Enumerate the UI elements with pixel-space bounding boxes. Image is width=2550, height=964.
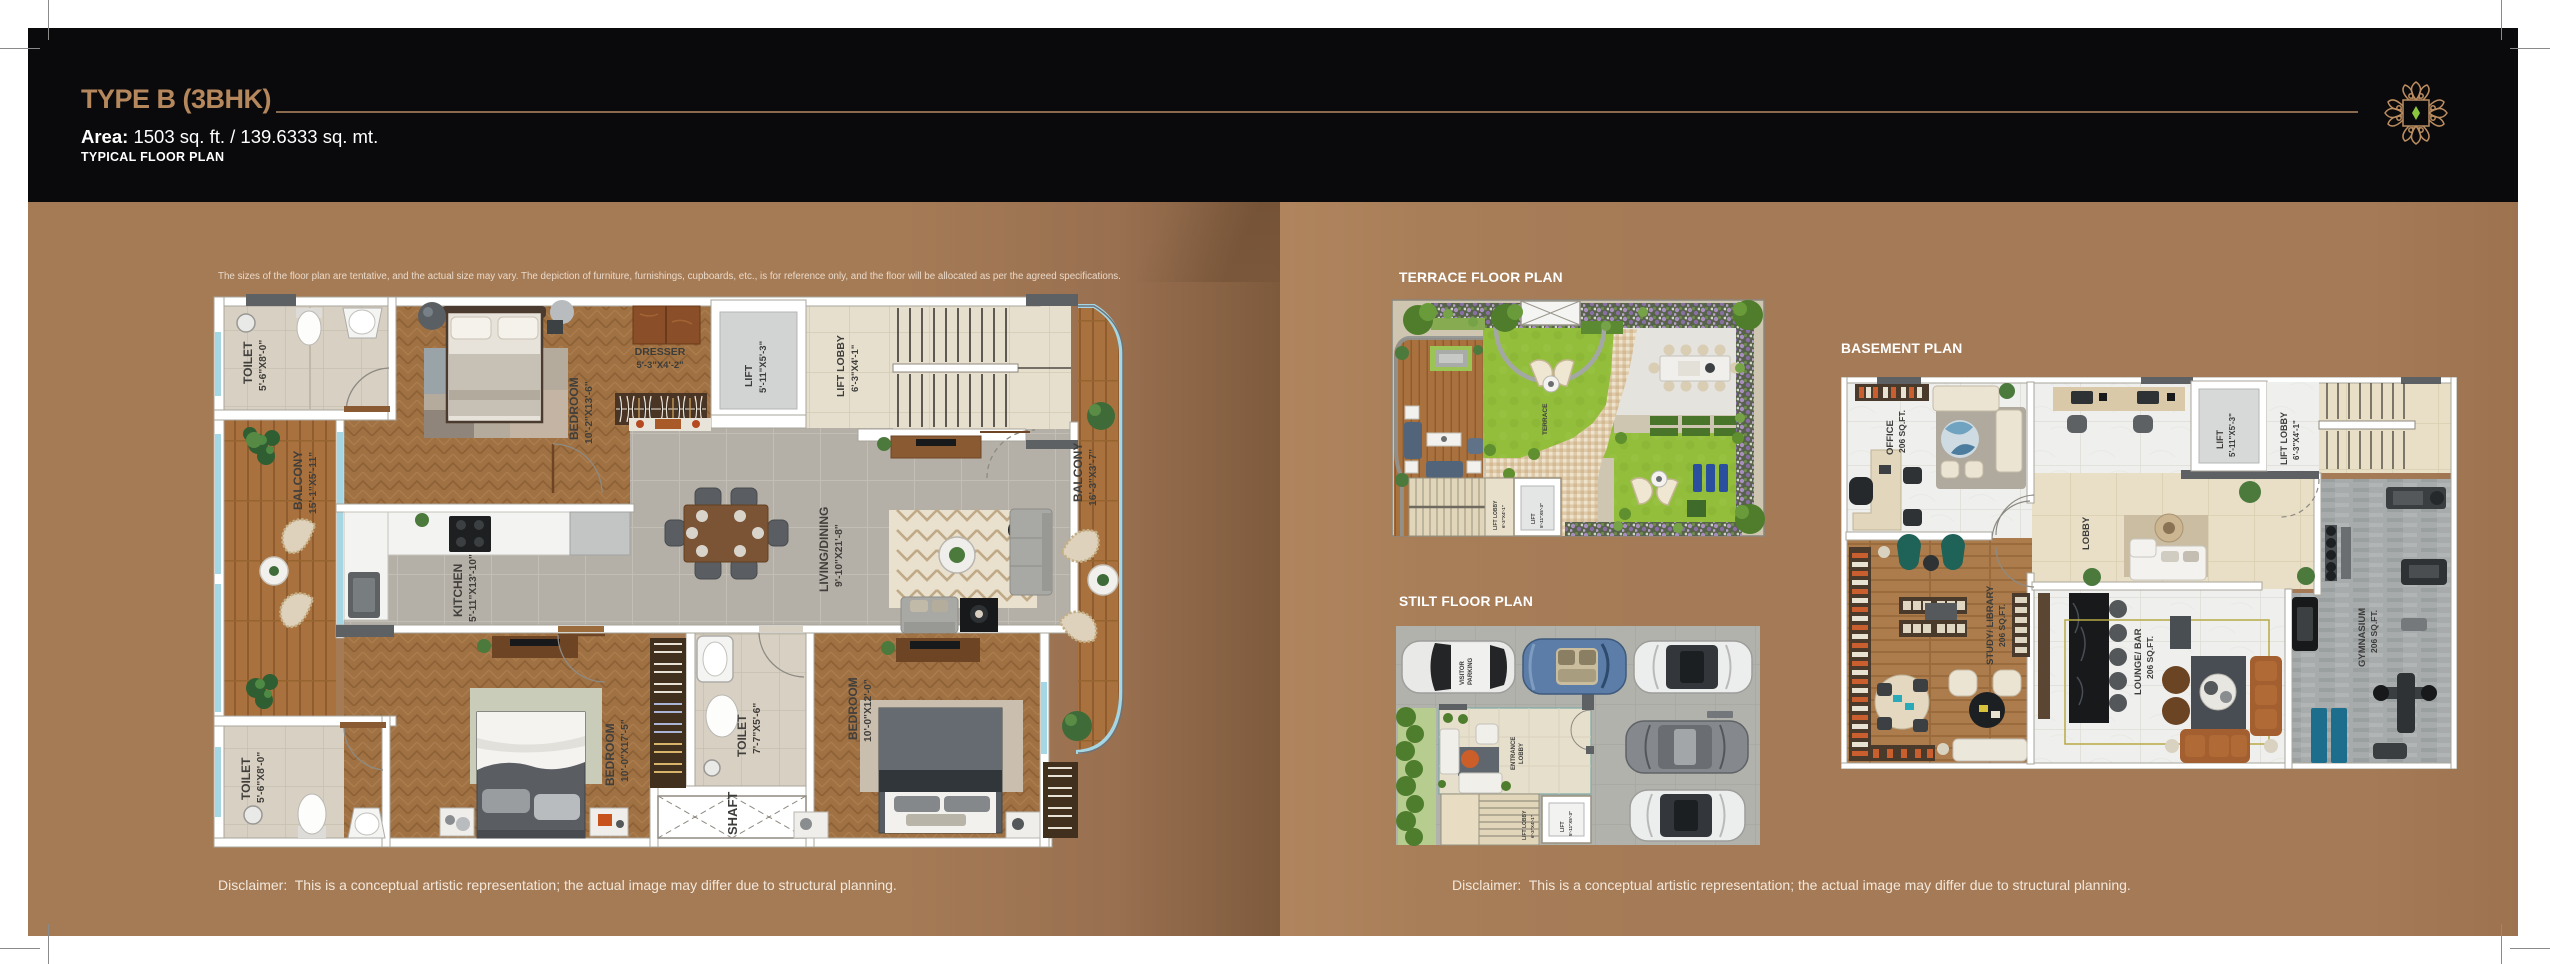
svg-text:KITCHEN: KITCHEN — [451, 564, 465, 617]
svg-text:LIFT LOBBY: LIFT LOBBY — [1522, 810, 1528, 840]
svg-text:5'-11"X5'-3": 5'-11"X5'-3" — [2228, 413, 2237, 457]
svg-text:TOILET: TOILET — [239, 757, 253, 800]
svg-text:BEDROOM: BEDROOM — [603, 723, 617, 786]
svg-text:6'-3"X4'-1": 6'-3"X4'-1" — [1501, 505, 1506, 528]
svg-text:LIFT: LIFT — [743, 364, 755, 387]
svg-text:VISITOR: VISITOR — [1460, 660, 1466, 685]
svg-text:15'-1"X5'-11": 15'-1"X5'-11" — [308, 452, 319, 514]
svg-text:LIFT LOBBY: LIFT LOBBY — [1493, 500, 1499, 530]
svg-text:9'-10"X21'-8": 9'-10"X21'-8" — [834, 524, 845, 587]
svg-text:LOUNGE/ BAR: LOUNGE/ BAR — [2133, 628, 2144, 695]
svg-text:TERRACE: TERRACE — [1542, 403, 1549, 435]
svg-text:PARKING: PARKING — [1468, 657, 1474, 685]
svg-text:5'-11"X5'-3": 5'-11"X5'-3" — [758, 341, 769, 393]
svg-text:10'-2"X13'-6": 10'-2"X13'-6" — [584, 381, 595, 444]
svg-text:206 SQ.FT.: 206 SQ.FT. — [1897, 410, 1907, 453]
svg-text:5'-11"X5'-3": 5'-11"X5'-3" — [1539, 503, 1544, 528]
svg-text:5'-11"X5'-3": 5'-11"X5'-3" — [1568, 811, 1573, 836]
svg-text:206 SQ.FT.: 206 SQ.FT. — [1997, 604, 2007, 647]
svg-text:DRESSER: DRESSER — [635, 346, 686, 358]
svg-text:6'-3"X4'-1": 6'-3"X4'-1" — [850, 345, 861, 392]
svg-text:5'-3"X4'-2": 5'-3"X4'-2" — [636, 360, 683, 371]
svg-text:5'-11"X13'-10": 5'-11"X13'-10" — [468, 554, 479, 622]
svg-text:LIFT LOBBY: LIFT LOBBY — [2279, 412, 2289, 465]
svg-text:LIFT: LIFT — [2215, 430, 2225, 449]
svg-text:BEDROOM: BEDROOM — [846, 677, 860, 740]
svg-text:16'-3"X3'-7": 16'-3"X3'-7" — [1088, 449, 1099, 506]
svg-text:LOBBY: LOBBY — [2081, 516, 2092, 550]
svg-text:LOBBY: LOBBY — [1519, 743, 1525, 764]
svg-text:7'-7"X5'-6": 7'-7"X5'-6" — [752, 703, 763, 754]
svg-text:5'-6"X8'-0": 5'-6"X8'-0" — [258, 340, 269, 391]
svg-text:LIFT: LIFT — [1531, 513, 1537, 524]
svg-text:TOILET: TOILET — [735, 714, 749, 757]
svg-text:BEDROOM: BEDROOM — [567, 377, 581, 440]
svg-text:BALCONY: BALCONY — [291, 451, 305, 510]
svg-text:206 SQ.FT.: 206 SQ.FT. — [2369, 610, 2379, 653]
svg-text:10'-0"X12'-0": 10'-0"X12'-0" — [863, 679, 874, 742]
svg-text:LIVING/DINING: LIVING/DINING — [817, 507, 831, 592]
svg-text:206 SQ.FT.: 206 SQ.FT. — [2145, 636, 2155, 679]
svg-text:SHAFT: SHAFT — [725, 792, 740, 835]
svg-text:LIFT LOBBY: LIFT LOBBY — [835, 335, 847, 397]
svg-text:6'-3"X4'-1": 6'-3"X4'-1" — [1530, 815, 1535, 838]
svg-text:ENTRANCE: ENTRANCE — [1511, 737, 1517, 770]
svg-text:GYMNASIUM: GYMNASIUM — [2357, 608, 2368, 667]
svg-text:10'-0"X17'-5": 10'-0"X17'-5" — [620, 719, 631, 782]
svg-text:TOILET: TOILET — [241, 341, 255, 384]
svg-text:BALCONY: BALCONY — [1071, 443, 1085, 502]
svg-text:5'-6"X8'-0": 5'-6"X8'-0" — [256, 752, 267, 803]
svg-text:STUDY/ LIBRARY: STUDY/ LIBRARY — [1985, 585, 1996, 665]
svg-text:OFFICE: OFFICE — [1885, 420, 1896, 455]
svg-text:LIFT: LIFT — [1560, 821, 1566, 832]
svg-text:6'-3"X4'-1": 6'-3"X4'-1" — [2292, 420, 2301, 460]
